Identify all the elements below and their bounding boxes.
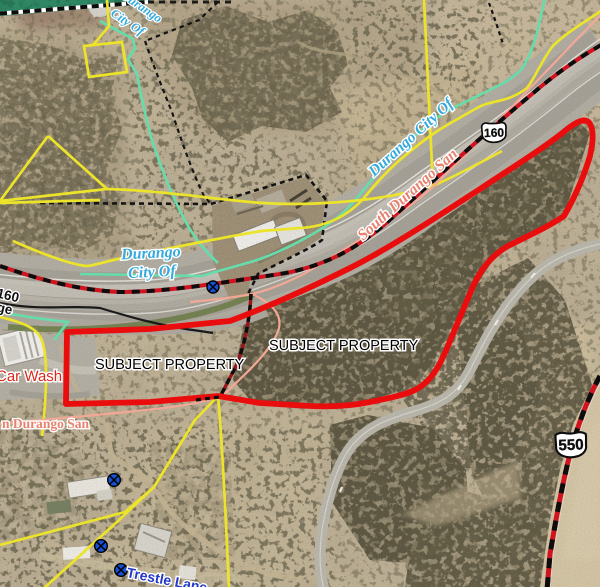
svg-text:160: 160 [484,125,505,140]
svg-text:SUBJECT PROPERTY: SUBJECT PROPERTY [95,357,245,373]
svg-text:City Of: City Of [128,263,178,283]
svg-text:Durango: Durango [120,243,181,263]
svg-text:550: 550 [558,436,584,454]
svg-text:Car Wash: Car Wash [0,368,62,385]
svg-text:n Durango San: n Durango San [2,416,90,431]
svg-text:SUBJECT PROPERTY: SUBJECT PROPERTY [269,338,419,354]
